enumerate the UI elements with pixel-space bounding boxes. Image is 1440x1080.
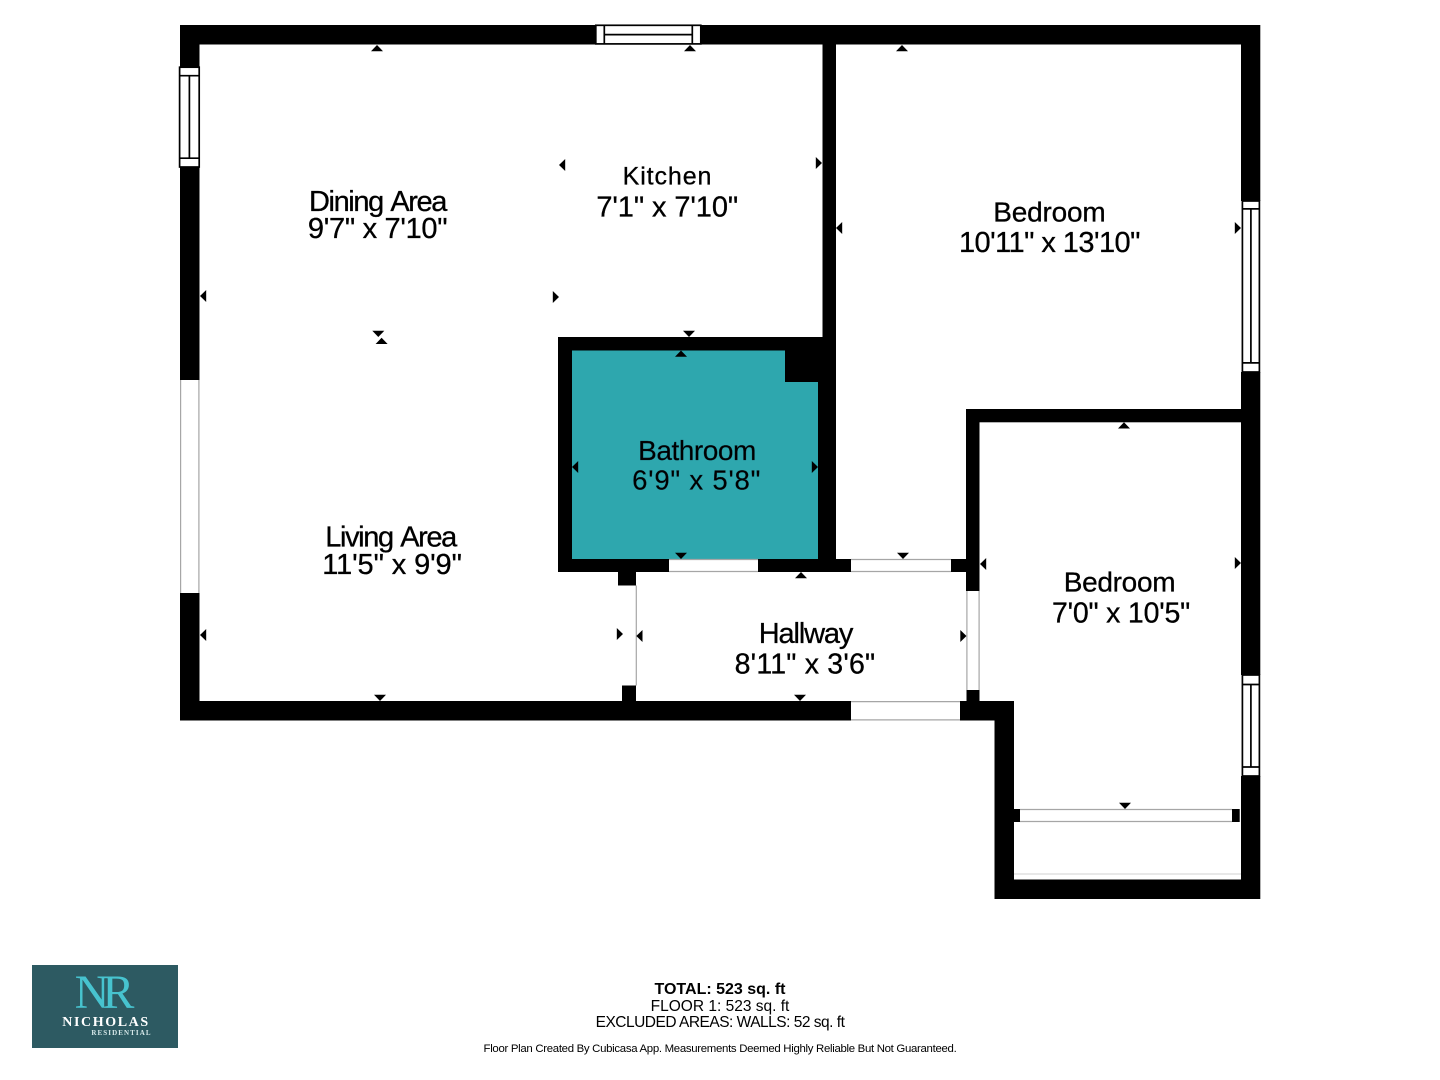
svg-text:6'9" x 5'8": 6'9" x 5'8" [632,464,761,495]
svg-text:7'1" x 7'10": 7'1" x 7'10" [596,191,738,223]
svg-text:11'5" x 9'9": 11'5" x 9'9" [322,549,462,581]
svg-text:Kitchen: Kitchen [623,163,713,191]
svg-text:Bedroom: Bedroom [1064,567,1176,598]
svg-text:7'0" x 10'5": 7'0" x 10'5" [1052,597,1190,629]
svg-text:8'11" x 3'6": 8'11" x 3'6" [735,648,876,680]
svg-text:Bedroom: Bedroom [993,196,1105,227]
svg-text:10'11" x 13'10": 10'11" x 13'10" [959,227,1140,259]
svg-text:Bathroom: Bathroom [638,435,756,466]
svg-text:Hallway: Hallway [759,618,854,650]
svg-text:9'7" x 7'10": 9'7" x 7'10" [308,213,447,245]
